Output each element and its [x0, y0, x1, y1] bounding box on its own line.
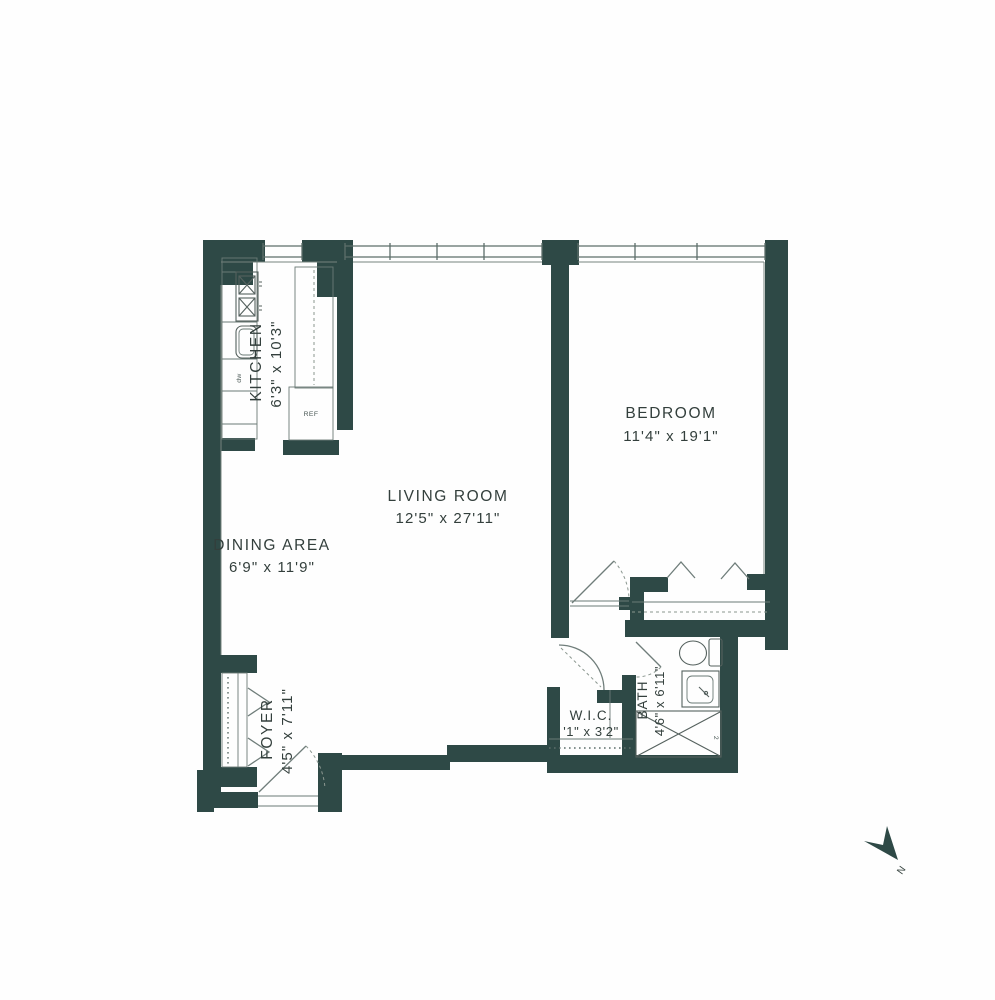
dishwasher-label: dw: [236, 373, 243, 383]
wic-dims: '1" x 3'2": [563, 724, 619, 739]
bedroom-dims: 11'4" x 19'1": [623, 428, 718, 445]
kitchen-window: [263, 243, 302, 260]
dining-area-dims: 6'9" x 11'9": [229, 559, 315, 576]
compass: N: [864, 826, 909, 877]
north-label: N: [895, 864, 908, 876]
floor-plan-page: dw REF: [0, 0, 995, 1000]
north-arrow-icon: [864, 826, 898, 860]
kitchen-label: KITCHEN: [248, 322, 265, 401]
wic-label: W.I.C.: [570, 708, 613, 723]
living-room-dims: 12'5" x 27'11": [396, 510, 501, 527]
foyer-label: FOYER: [259, 698, 276, 759]
hall-closet-doors: [559, 645, 604, 690]
tub-fixture-label: 2: [712, 736, 719, 740]
toilet-icon: [680, 639, 723, 666]
bedroom-windows: [578, 243, 765, 260]
kitchen-dims: 6'3" x 10'3": [268, 320, 285, 407]
refrigerator-label: REF: [304, 411, 319, 418]
dining-area-label: DINING AREA: [213, 537, 331, 554]
living-room-label: LIVING ROOM: [388, 488, 509, 505]
bath-label: BATH: [635, 680, 650, 719]
living-room-windows: [345, 243, 542, 260]
bedroom-label: BEDROOM: [625, 405, 716, 422]
floor-plan-drawing: dw REF: [0, 0, 995, 1000]
bath-sink-icon: [682, 671, 719, 707]
refrigerator: REF: [289, 387, 333, 440]
wall-face-lines: [221, 262, 764, 655]
bath-dims: 4'6" x 6'11": [652, 666, 667, 736]
foyer-dims: 4'5" x 7'11": [279, 688, 296, 774]
